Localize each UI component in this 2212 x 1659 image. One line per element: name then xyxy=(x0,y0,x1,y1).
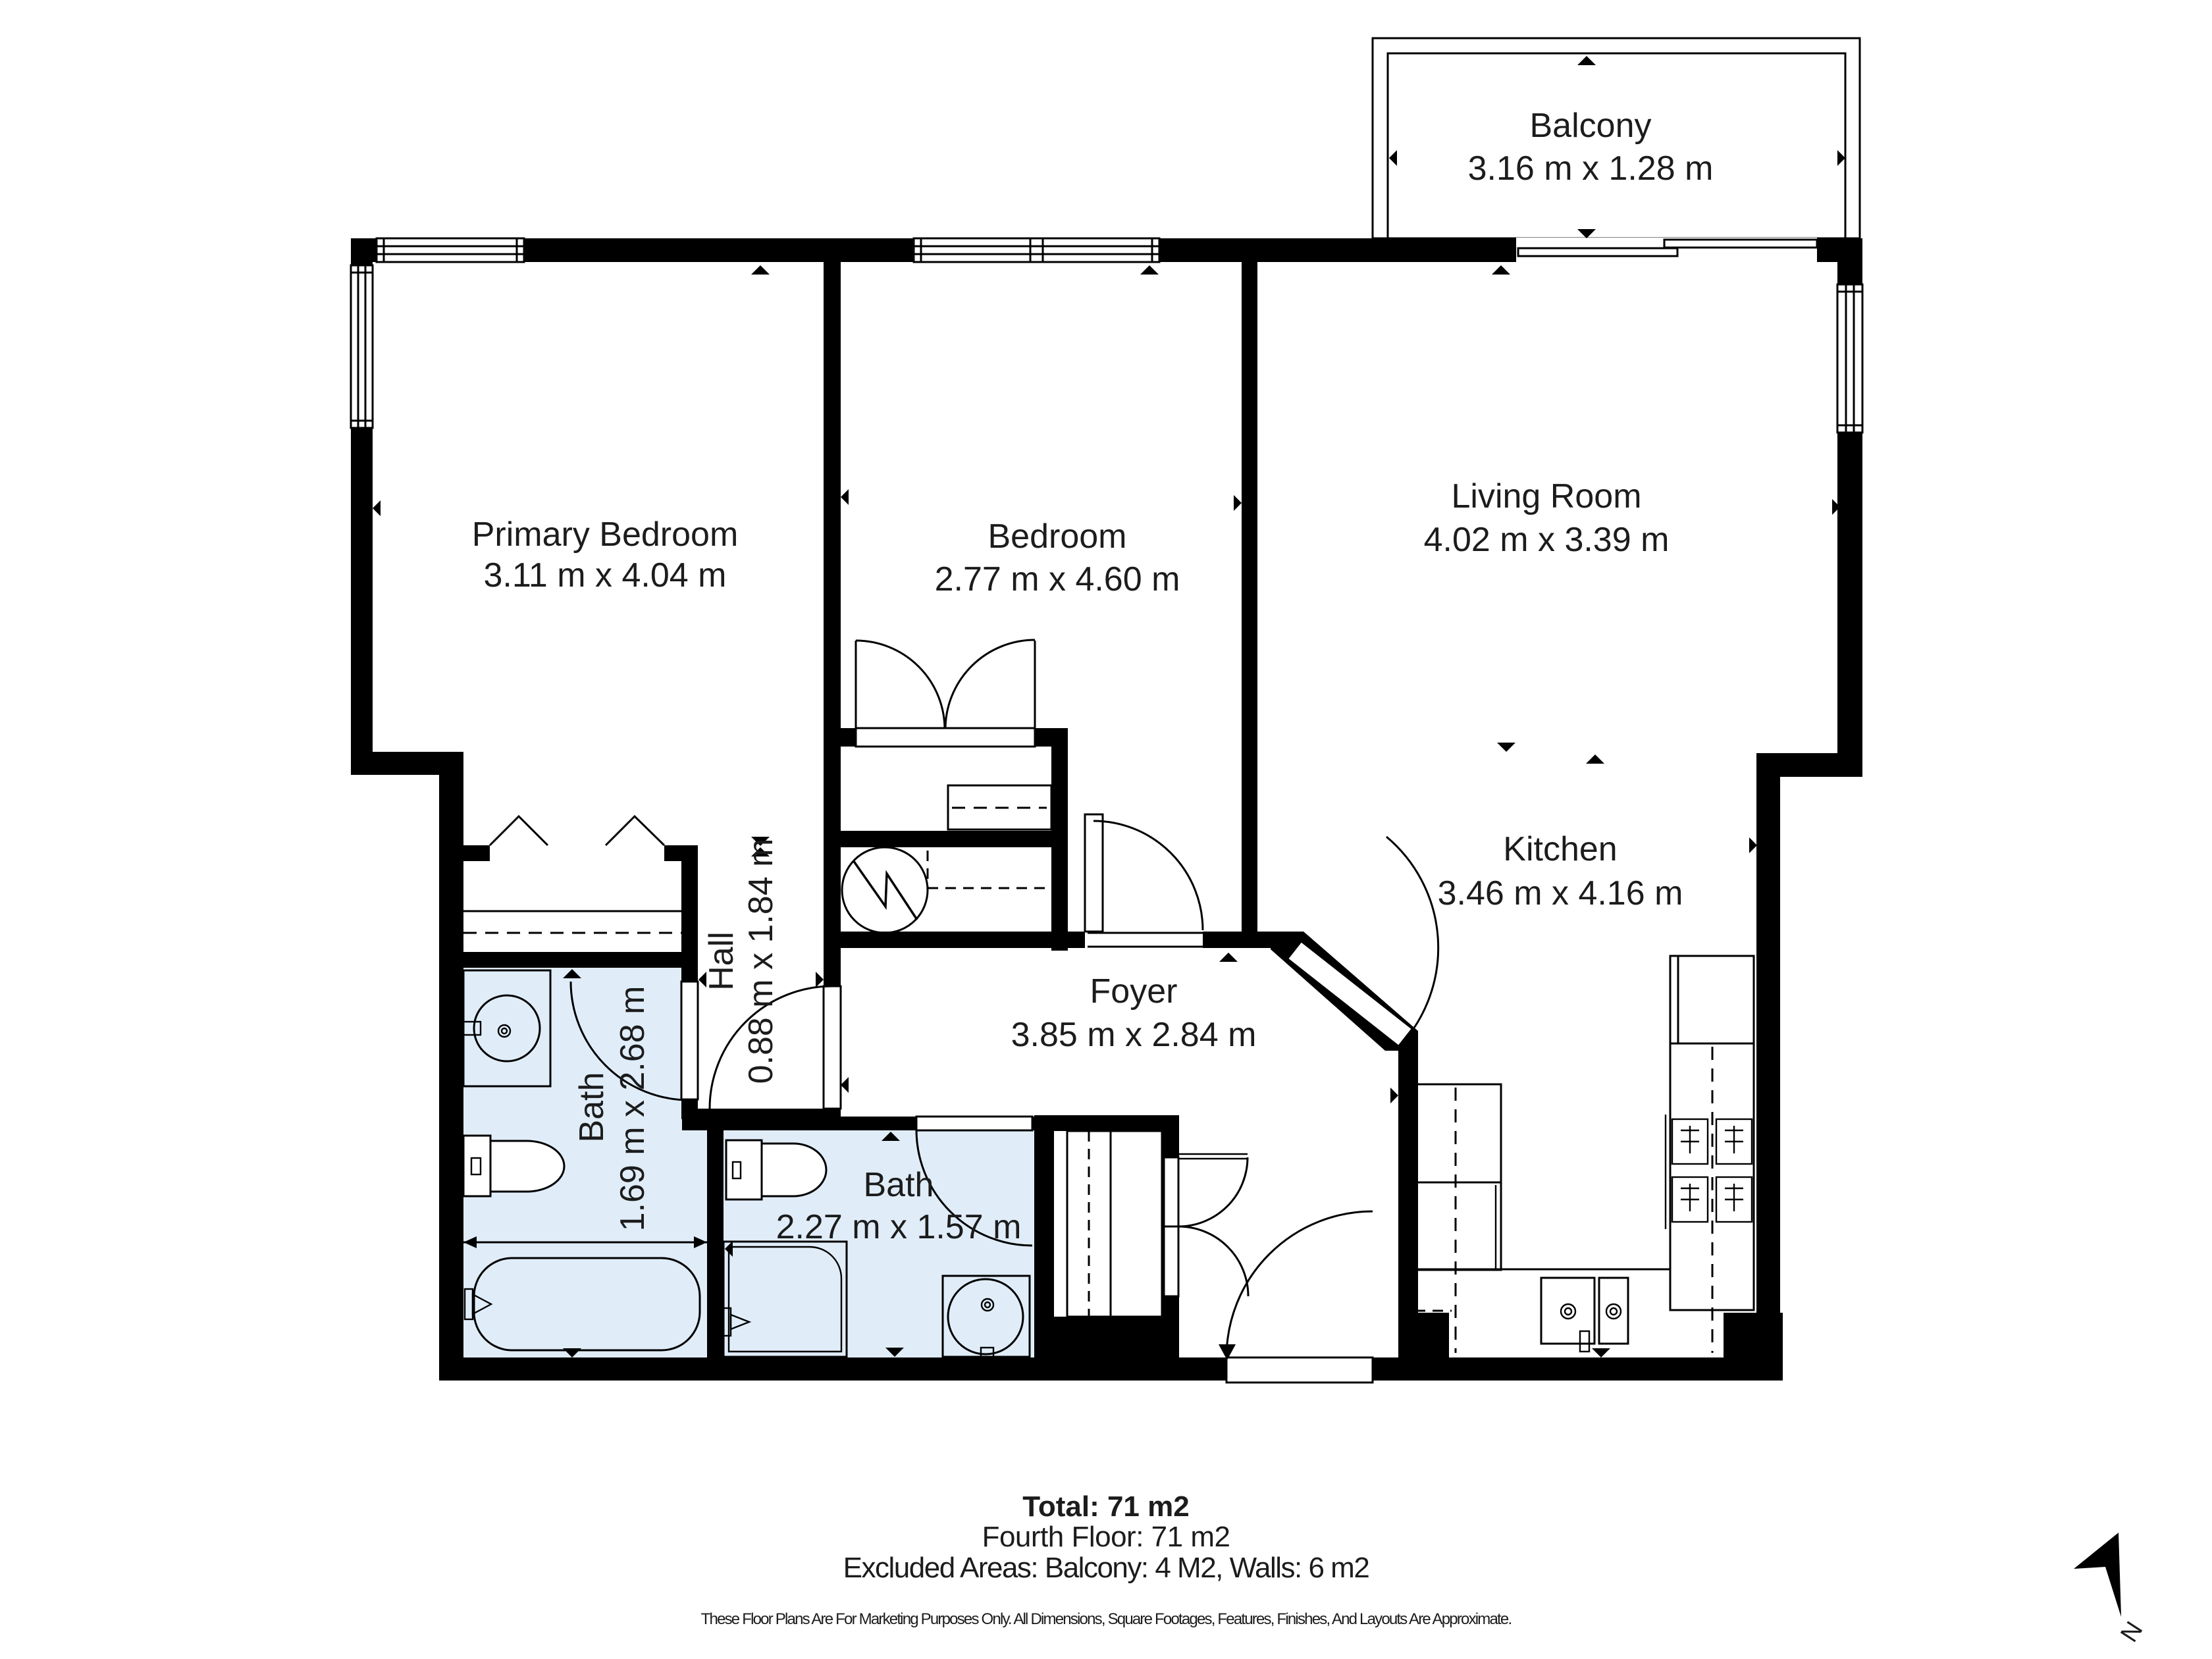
svg-text:2.27 m x 1.57 m: 2.27 m x 1.57 m xyxy=(776,1208,1022,1246)
svg-text:Foyer: Foyer xyxy=(1090,972,1178,1011)
svg-text:Kitchen: Kitchen xyxy=(1503,830,1617,868)
svg-text:Total: 71 m2: Total: 71 m2 xyxy=(1022,1490,1189,1523)
svg-text:These Floor Plans Are For Mark: These Floor Plans Are For Marketing Purp… xyxy=(701,1610,1512,1628)
svg-text:Balcony: Balcony xyxy=(1530,107,1652,145)
svg-text:2.77 m x 4.60 m: 2.77 m x 4.60 m xyxy=(935,560,1180,598)
svg-text:Primary Bedroom: Primary Bedroom xyxy=(472,515,739,554)
svg-text:3.46 m x 4.16 m: 3.46 m x 4.16 m xyxy=(1438,874,1683,912)
svg-text:1.69 m x 2.68 m: 1.69 m x 2.68 m xyxy=(614,986,652,1232)
svg-text:Fourth Floor: 71 m2: Fourth Floor: 71 m2 xyxy=(982,1521,1230,1553)
svg-text:Bath: Bath xyxy=(573,1072,611,1143)
svg-text:3.11 m x 4.04 m: 3.11 m x 4.04 m xyxy=(484,556,727,594)
svg-text:Bedroom: Bedroom xyxy=(988,517,1127,556)
svg-text:Bath: Bath xyxy=(864,1166,934,1204)
svg-text:3.16 m x 1.28 m: 3.16 m x 1.28 m xyxy=(1468,149,1714,188)
svg-text:Living Room: Living Room xyxy=(1451,477,1641,515)
svg-text:3.85 m x 2.84 m: 3.85 m x 2.84 m xyxy=(1011,1016,1257,1054)
svg-text:Excluded Areas: Balcony: 4 M2,: Excluded Areas: Balcony: 4 M2, Walls: 6 … xyxy=(843,1552,1369,1584)
svg-text:Hall: Hall xyxy=(702,932,741,991)
svg-text:0.88 m x 1.84 m: 0.88 m x 1.84 m xyxy=(742,839,780,1084)
svg-text:4.02 m x 3.39 m: 4.02 m x 3.39 m xyxy=(1424,521,1670,559)
